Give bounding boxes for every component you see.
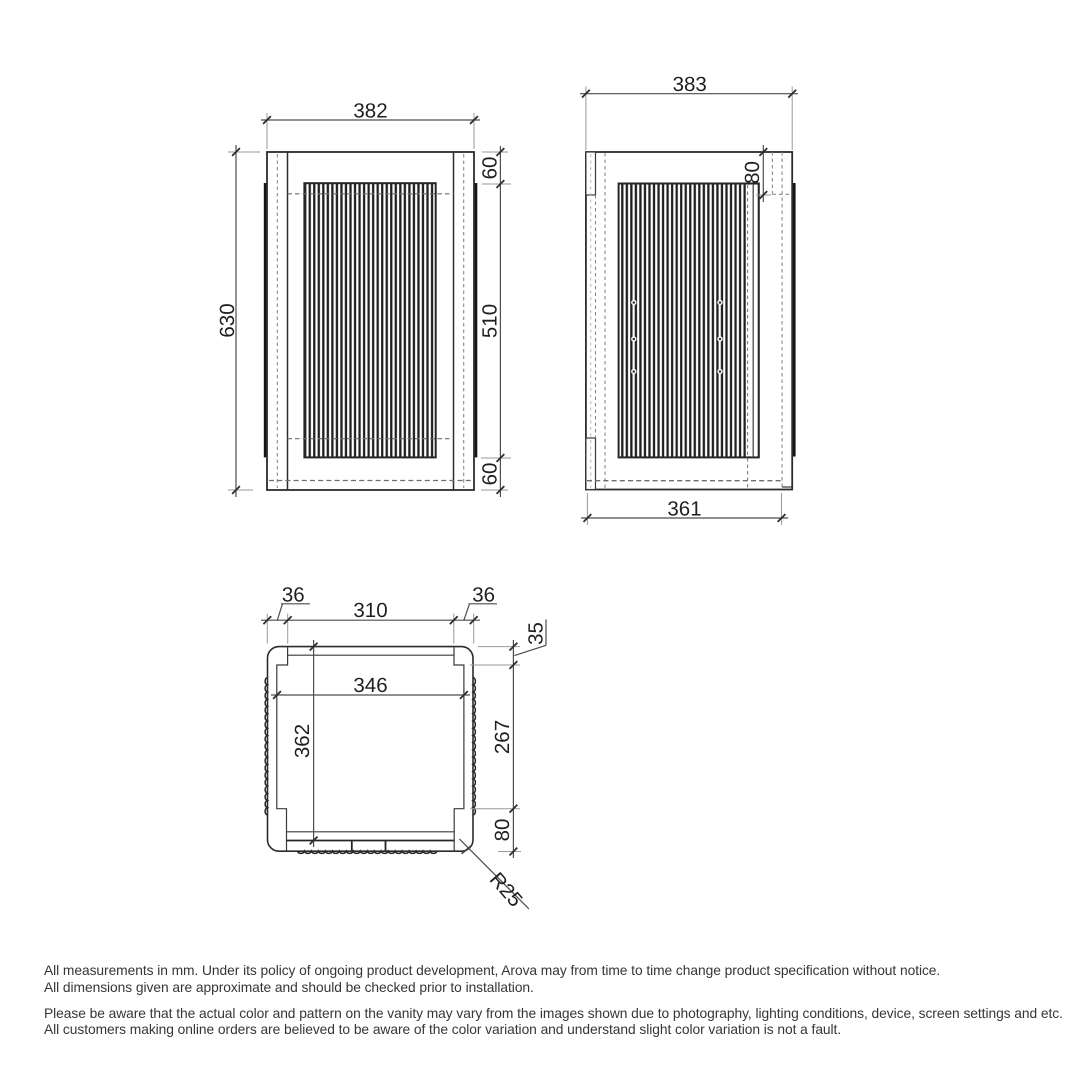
svg-text:383: 383 xyxy=(673,73,707,96)
svg-text:60: 60 xyxy=(479,157,502,180)
svg-text:80: 80 xyxy=(491,819,514,842)
svg-text:267: 267 xyxy=(491,720,514,754)
svg-text:R25: R25 xyxy=(485,868,527,911)
svg-text:36: 36 xyxy=(472,584,495,607)
svg-text:362: 362 xyxy=(291,724,314,758)
svg-text:382: 382 xyxy=(353,100,387,123)
svg-text:60: 60 xyxy=(479,463,502,486)
svg-text:630: 630 xyxy=(216,303,239,337)
svg-text:346: 346 xyxy=(353,674,387,697)
svg-text:36: 36 xyxy=(282,584,305,607)
svg-text:310: 310 xyxy=(353,599,387,622)
svg-text:361: 361 xyxy=(667,498,701,521)
svg-text:80: 80 xyxy=(741,161,764,184)
svg-text:510: 510 xyxy=(479,304,502,338)
svg-text:35: 35 xyxy=(524,622,547,645)
